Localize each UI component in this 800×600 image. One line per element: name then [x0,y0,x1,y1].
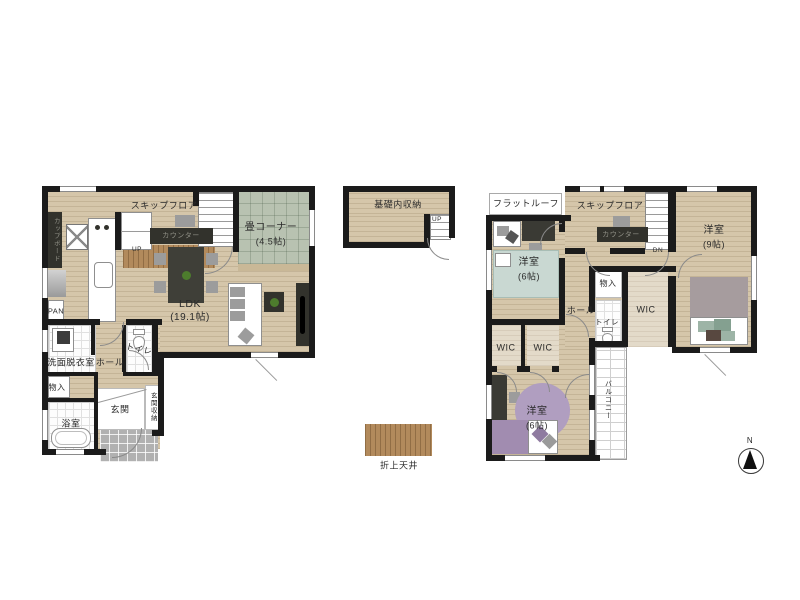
wall [343,186,349,248]
label-wic-main: WIC [637,306,656,315]
chair-icon [154,253,166,265]
label-wic-left: WIC [497,344,516,353]
bed-gray [690,277,748,317]
north-arrow-icon [743,450,757,469]
wall [449,186,455,238]
window [589,410,595,440]
wall [552,366,559,372]
appliance-box [48,270,66,297]
label-bedroom9-size: (9帖) [703,241,725,250]
wall [521,325,525,366]
label-toilet-2f: トイレ [595,318,619,326]
label-dn: DN [653,248,663,255]
window [589,365,595,395]
legend-label-coffered: 折上天井 [380,462,418,471]
sink-icon [94,262,113,288]
window [751,256,757,300]
wall [91,325,95,355]
wall [115,212,121,250]
label-tatami: 畳コーナー [245,223,298,233]
label-ldk-size: (19.1帖) [170,313,210,323]
wall [668,186,676,252]
floor-cushion [721,331,735,341]
wall [152,319,158,372]
label-counter-2f: カウンター [602,232,640,239]
window [42,330,48,352]
window-tick [704,354,726,376]
window [700,347,730,353]
window [486,250,492,290]
basement-floor [346,214,424,242]
window [56,449,84,455]
label-bedroom6-upper-size: (6帖) [518,273,540,282]
wall [668,276,676,347]
label-balcony: バルコニー [605,380,612,420]
label-entry-storage: 玄関収納 [149,392,156,422]
label-bedroom6-lower-size: (6帖) [526,422,548,431]
label-tatami-size: (4.5帖) [256,238,287,247]
label-wic-right: WIC [534,344,553,353]
label-flat-roof: フラットルーフ [493,200,559,209]
stove-burner-icon [104,225,109,230]
door-arc [427,238,449,260]
floor-plan-canvas: スキップフロア カウンター UP カップボード 畳コーナー (4.5帖) LDK… [0,0,800,600]
window-tick [255,359,277,381]
plant-icon [182,271,191,280]
wall [343,242,430,248]
window [580,186,600,192]
window [60,186,96,192]
toilet-tank-icon [133,329,145,335]
tv-icon [300,296,305,334]
label-hall-2f: ホール [567,307,596,316]
label-storage-1f: 物入 [49,384,66,392]
wall [589,347,595,365]
window [687,186,717,192]
label-counter-1f: カウンター [162,233,200,240]
wall [559,258,565,325]
label-up-1f: UP [132,247,142,254]
label-bedroom6-lower: 洋室 [527,407,548,417]
wall [622,266,628,347]
label-washroom: 洗面脱衣室 [47,359,95,368]
legend-swatch-coffered [365,424,432,456]
label-bedroom6-upper: 洋室 [519,258,540,268]
shelf-item [230,299,245,309]
label-cupboard: カップボード [52,218,59,263]
chair-icon [154,281,166,293]
counter-monitor [175,215,195,227]
wall [42,398,94,402]
wall [565,248,585,254]
label-pantry: PAN [48,307,64,315]
label-hall-1f: ホール [96,359,125,368]
toilet-tank-icon [602,327,613,332]
wall [492,319,559,325]
bed-purple [490,420,528,454]
wall [610,248,645,254]
plant-icon [270,298,279,307]
chair-icon [206,281,218,293]
window [505,455,545,461]
tatami-edge [238,264,309,271]
label-basement-storage: 基礎内収納 [374,201,422,210]
stove-burner-icon [95,225,100,230]
shelf-item [230,287,245,297]
label-skip-floor-2f: スキップフロア [577,202,644,211]
window [251,352,278,358]
washer-icon [57,331,70,344]
wall [233,186,239,252]
window [42,410,48,440]
window [309,210,315,246]
refrigerator-icon [66,224,88,250]
label-entry: 玄関 [110,406,129,415]
shelf-item [230,311,245,321]
label-skip-floor-1f: スキップフロア [131,202,198,211]
wall [343,186,455,192]
wall [94,372,98,449]
floor-cushion [706,330,721,341]
wall [517,366,530,372]
wall [160,352,315,358]
window [486,385,492,419]
wall [589,440,595,455]
wall [158,352,164,436]
label-storage-2f: 物入 [600,280,617,288]
compass-north-label: N [747,437,753,445]
label-bath: 浴室 [61,420,80,429]
wall [589,395,595,410]
wall [123,372,158,376]
label-bedroom9: 洋室 [704,226,725,236]
window [604,186,624,192]
bed-pillow [495,253,511,267]
wall [589,266,595,300]
window [42,268,48,298]
label-up-basement: UP [432,217,442,224]
label-ldk: LDK [179,299,201,310]
wall [42,372,94,376]
bathtub-inner [55,431,87,445]
counter-monitor-2f [613,216,630,227]
step-divider [121,231,152,232]
